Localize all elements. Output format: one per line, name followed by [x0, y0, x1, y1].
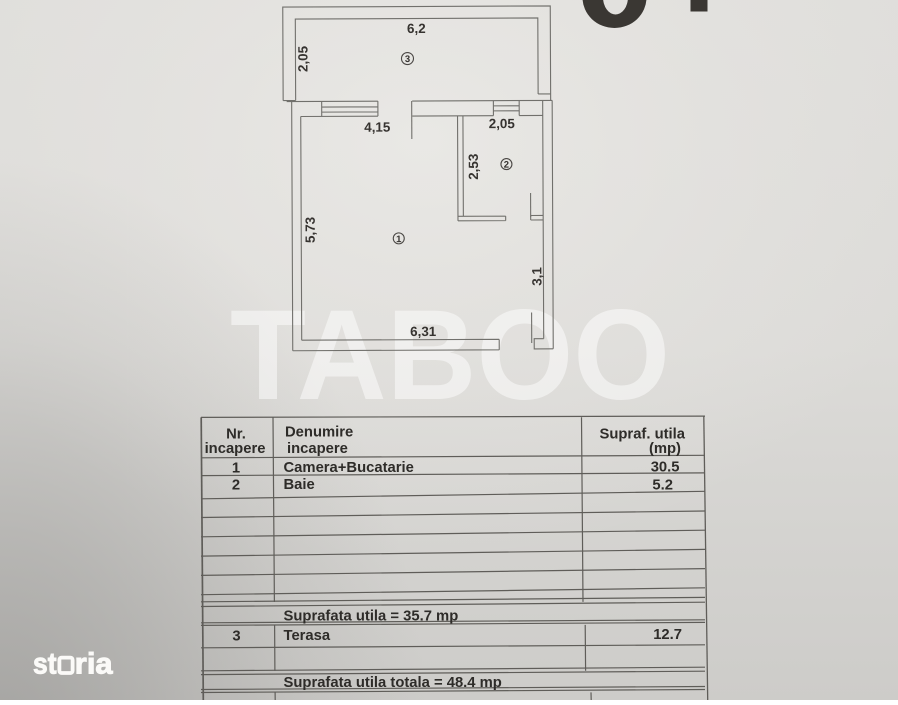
svg-text:Denumire: Denumire — [285, 425, 353, 441]
svg-text:6,2: 6,2 — [407, 21, 426, 36]
svg-text:ria: ria — [75, 648, 113, 681]
svg-text:Supraf. utila: Supraf. utila — [599, 426, 685, 442]
svg-text:3: 3 — [232, 629, 240, 645]
svg-text:TABOO: TABOO — [230, 284, 670, 427]
svg-text:30.5: 30.5 — [651, 460, 680, 476]
svg-text:2: 2 — [232, 478, 240, 494]
svg-text:6,31: 6,31 — [410, 324, 437, 339]
svg-text:2,53: 2,53 — [466, 154, 481, 180]
svg-text:incapere: incapere — [287, 441, 348, 457]
svg-text:3: 3 — [405, 54, 410, 65]
svg-text:1: 1 — [396, 234, 402, 245]
svg-text:5.2: 5.2 — [652, 478, 673, 494]
svg-text:(mp): (mp) — [649, 441, 681, 457]
svg-text:3,1: 3,1 — [529, 267, 544, 286]
svg-text:Suprafata utila = 35.7 mp: Suprafata utila = 35.7 mp — [284, 608, 459, 624]
svg-text:12.7: 12.7 — [653, 627, 682, 643]
svg-text:5,73: 5,73 — [303, 217, 318, 243]
svg-text:4,15: 4,15 — [364, 120, 391, 135]
svg-text:Baie: Baie — [284, 477, 315, 493]
svg-text:1: 1 — [232, 460, 240, 476]
svg-text:Camera+Bucatarie: Camera+Bucatarie — [284, 460, 414, 476]
svg-text:2,05: 2,05 — [489, 116, 516, 131]
svg-text:Suprafata utila totala = 48.4: Suprafata utila totala = 48.4 mp — [284, 675, 502, 691]
svg-text:2,05: 2,05 — [295, 45, 310, 72]
svg-text:st: st — [33, 648, 57, 681]
svg-text:2: 2 — [504, 160, 509, 171]
svg-text:incapere: incapere — [205, 441, 266, 457]
svg-text:Terasa: Terasa — [284, 628, 331, 644]
